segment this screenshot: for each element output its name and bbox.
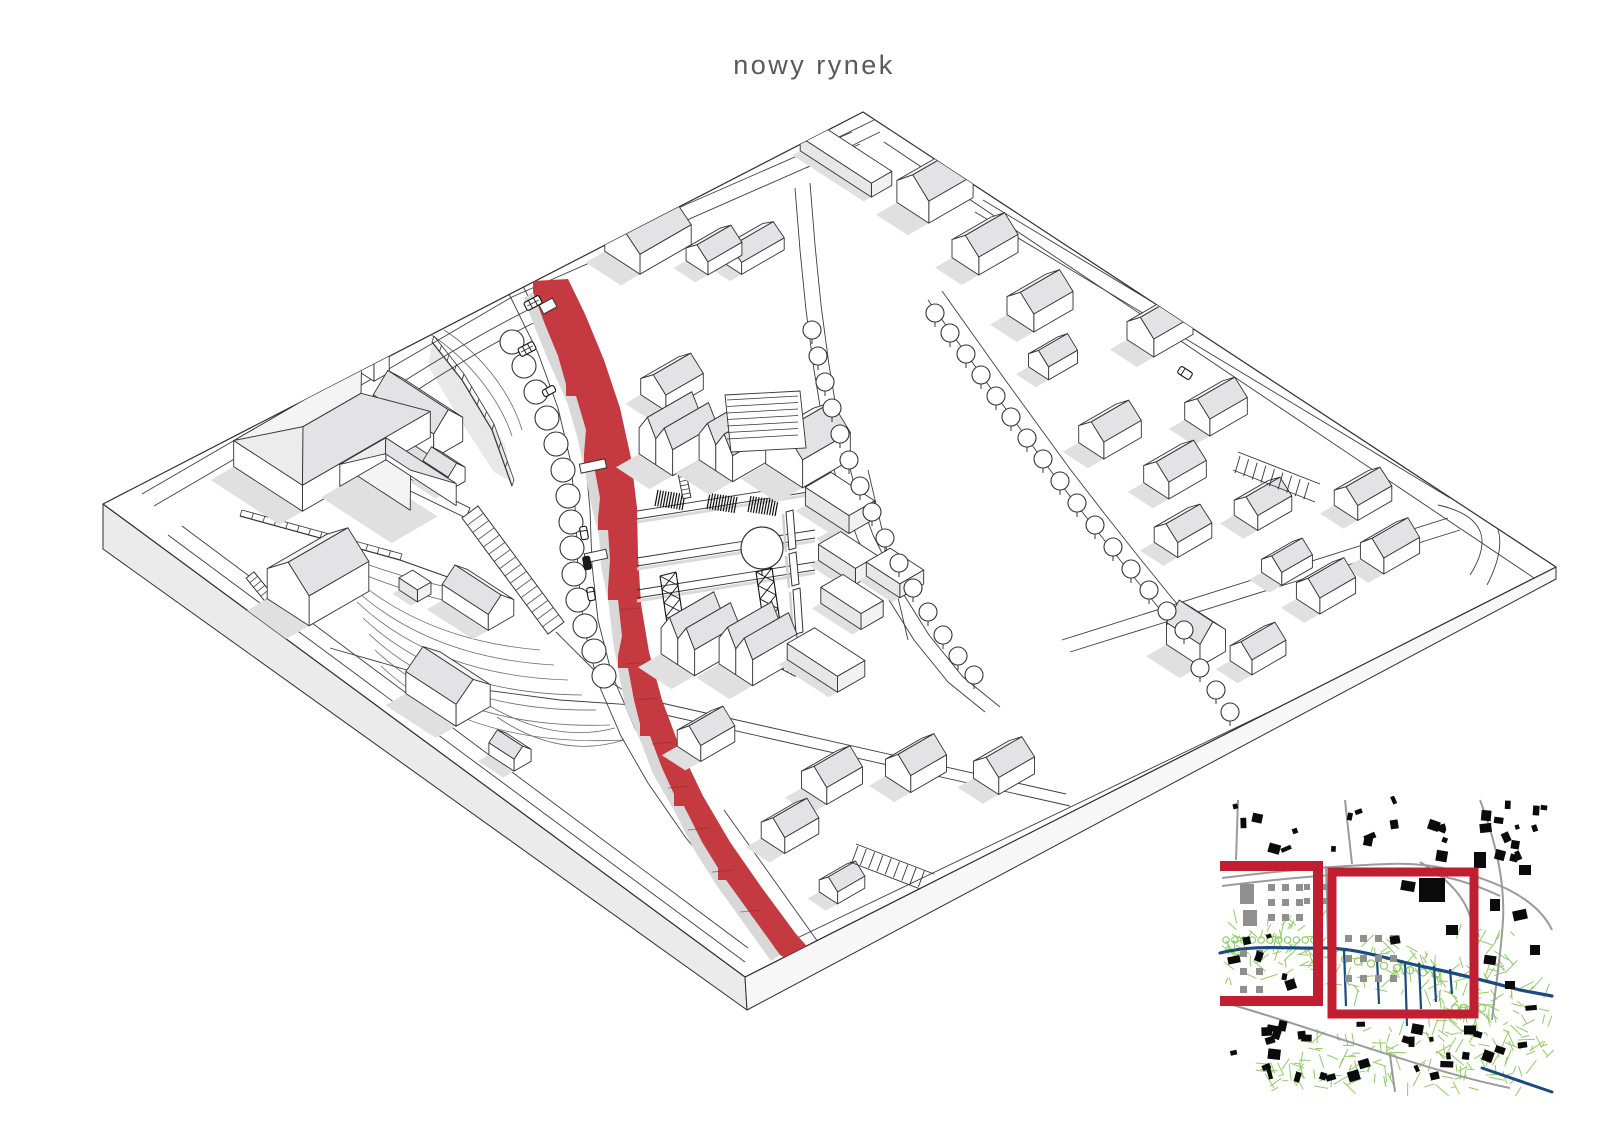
inset-map	[1218, 796, 1556, 1099]
axonometric-drawing	[0, 0, 1600, 1131]
page: nowy rynek	[0, 0, 1600, 1131]
